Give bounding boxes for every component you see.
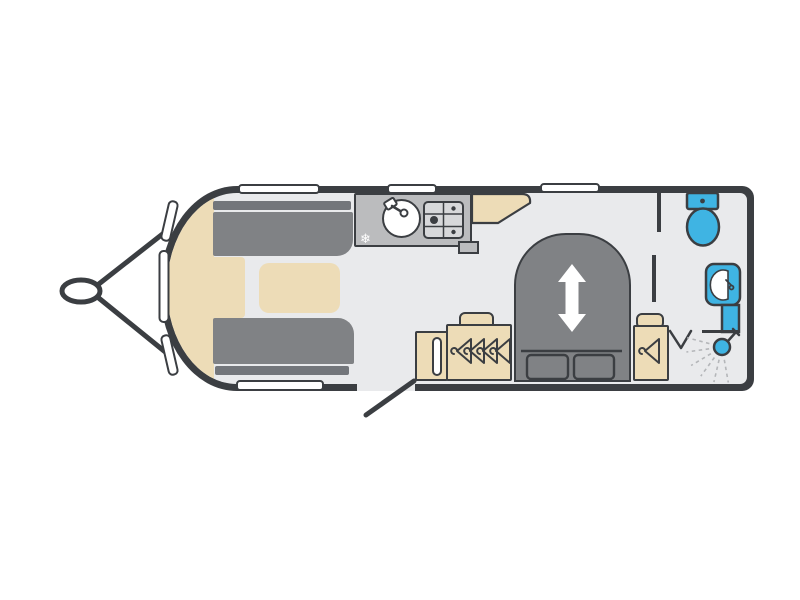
entrance-doorway xyxy=(357,379,415,391)
tow-hitch xyxy=(62,229,169,355)
sofa-top-backrest xyxy=(213,201,351,210)
front-bulkhead-shelf xyxy=(167,193,214,384)
front-chest xyxy=(208,257,245,318)
window-top-bedroom xyxy=(540,183,600,193)
window-bottom-lounge xyxy=(236,380,324,391)
occasional-table xyxy=(259,263,340,313)
floorplan-canvas: ❄ xyxy=(0,0,800,600)
window-top-lounge xyxy=(238,184,320,194)
slatted-unit-vent xyxy=(432,337,442,376)
kitchen-sink xyxy=(382,199,421,238)
sofa-top-cushion xyxy=(213,212,353,256)
sofa-bottom-backrest xyxy=(215,366,349,375)
wardrobe-left xyxy=(446,324,512,381)
wardrobe-right xyxy=(633,325,669,381)
window-top-kitchen xyxy=(387,184,437,194)
island-bed xyxy=(514,233,631,382)
sofa-bottom-cushion xyxy=(213,318,354,364)
